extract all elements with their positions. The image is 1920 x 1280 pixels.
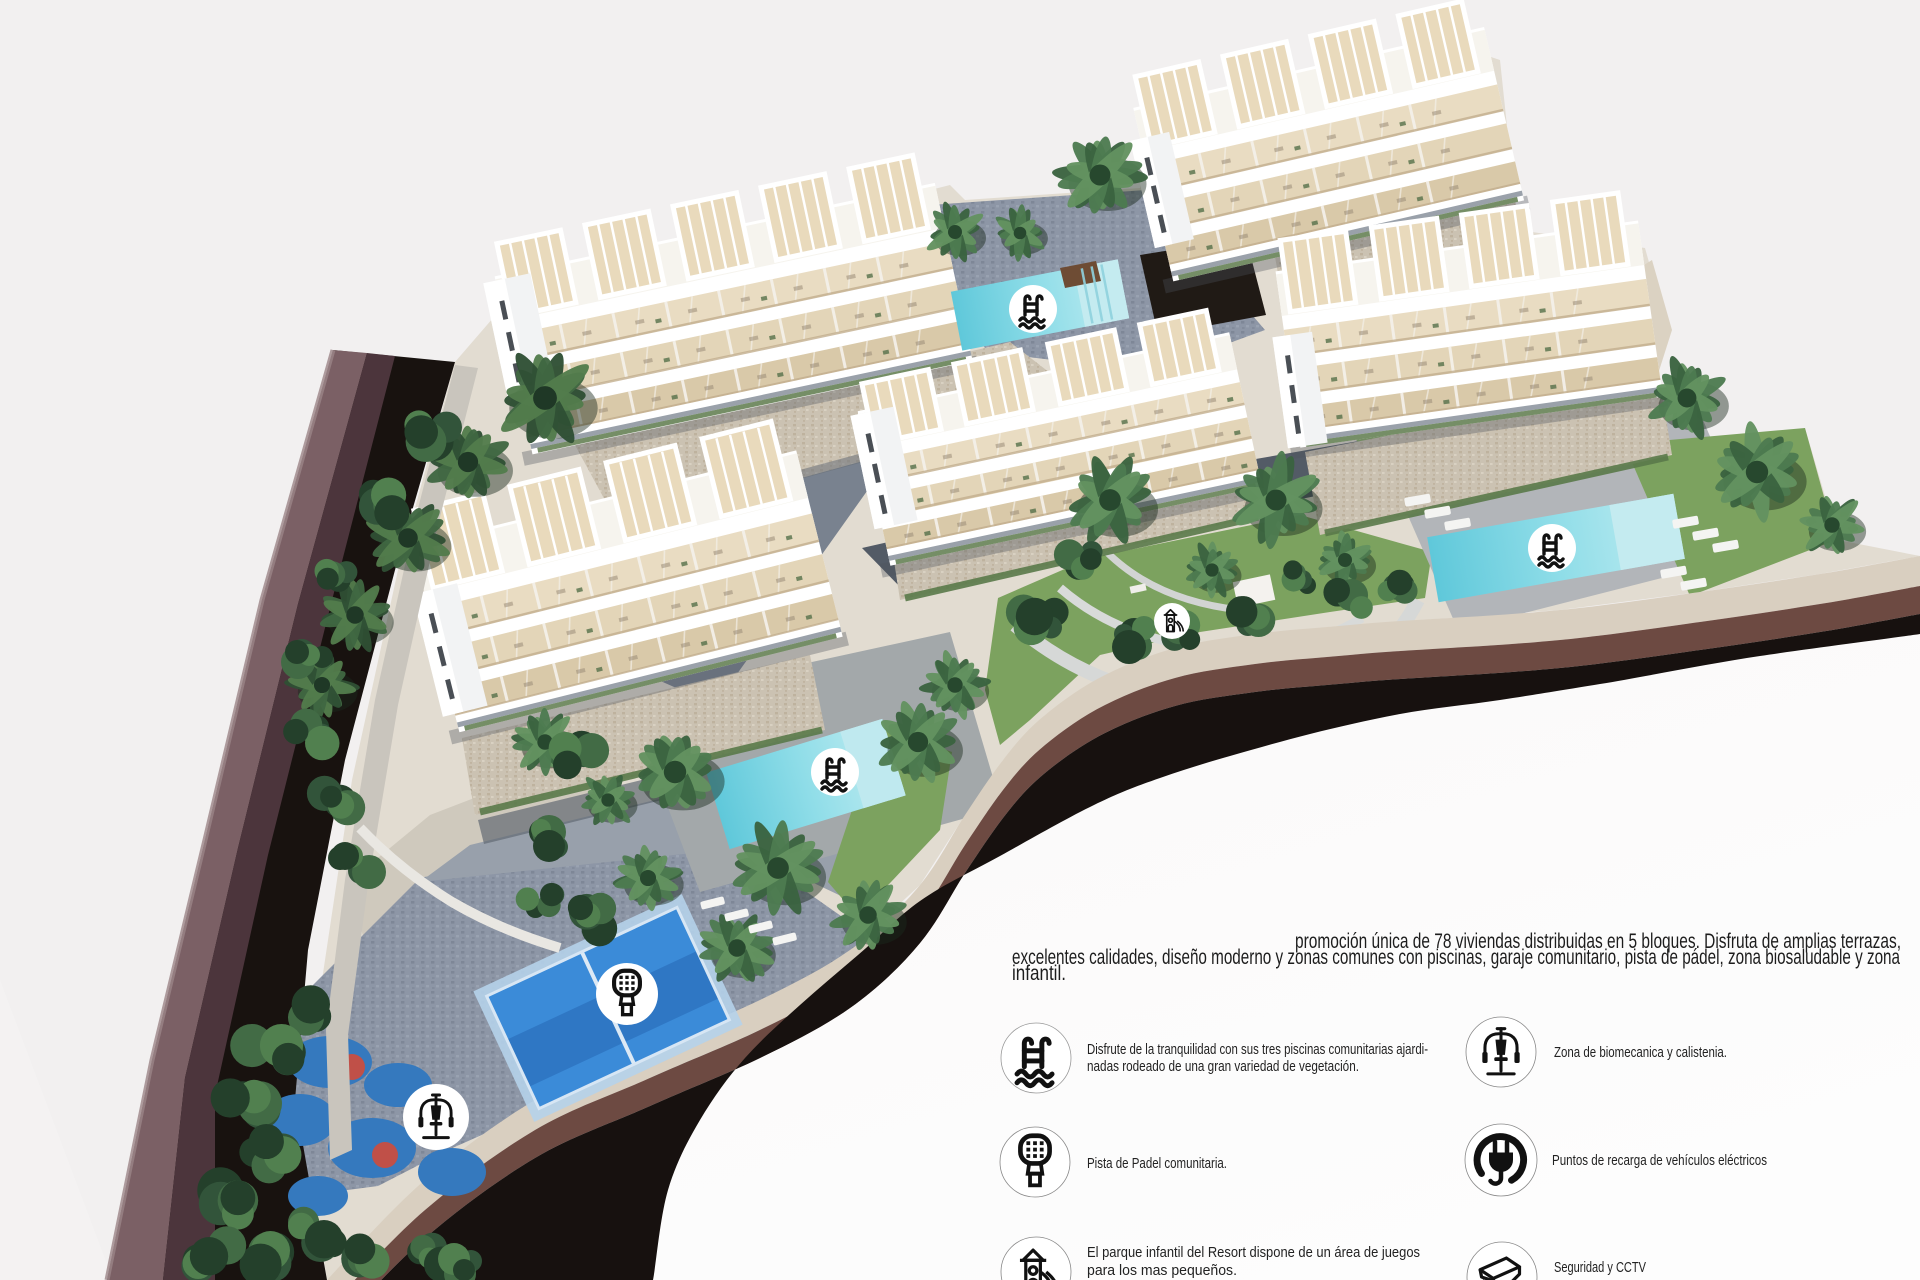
svg-text:El parque infantil del Resort: El parque infantil del Resort dispone de… [1087,1244,1420,1261]
svg-text:excelentes calidades, diseño m: excelentes calidades, diseño moderno y z… [1012,946,1900,969]
svg-text:Puntos de recarga de vehículos: Puntos de recarga de vehículos eléctrico… [1552,1152,1767,1169]
svg-text:infantil.: infantil. [1012,962,1066,985]
svg-text:Zona de biomecanica y calisten: Zona de biomecanica y calistenia. [1554,1044,1727,1061]
svg-text:nadas rodeado de una gran vari: nadas rodeado de una gran variedad de ve… [1087,1058,1359,1075]
svg-text:Pista de Padel comunitaria.: Pista de Padel comunitaria. [1087,1155,1227,1172]
svg-text:para los mas pequeños.: para los mas pequeños. [1087,1262,1237,1279]
svg-text:Disfrute de la tranquilidad co: Disfrute de la tranquilidad con sus tres… [1087,1041,1428,1058]
svg-text:Seguridad y CCTV: Seguridad y CCTV [1554,1259,1646,1276]
